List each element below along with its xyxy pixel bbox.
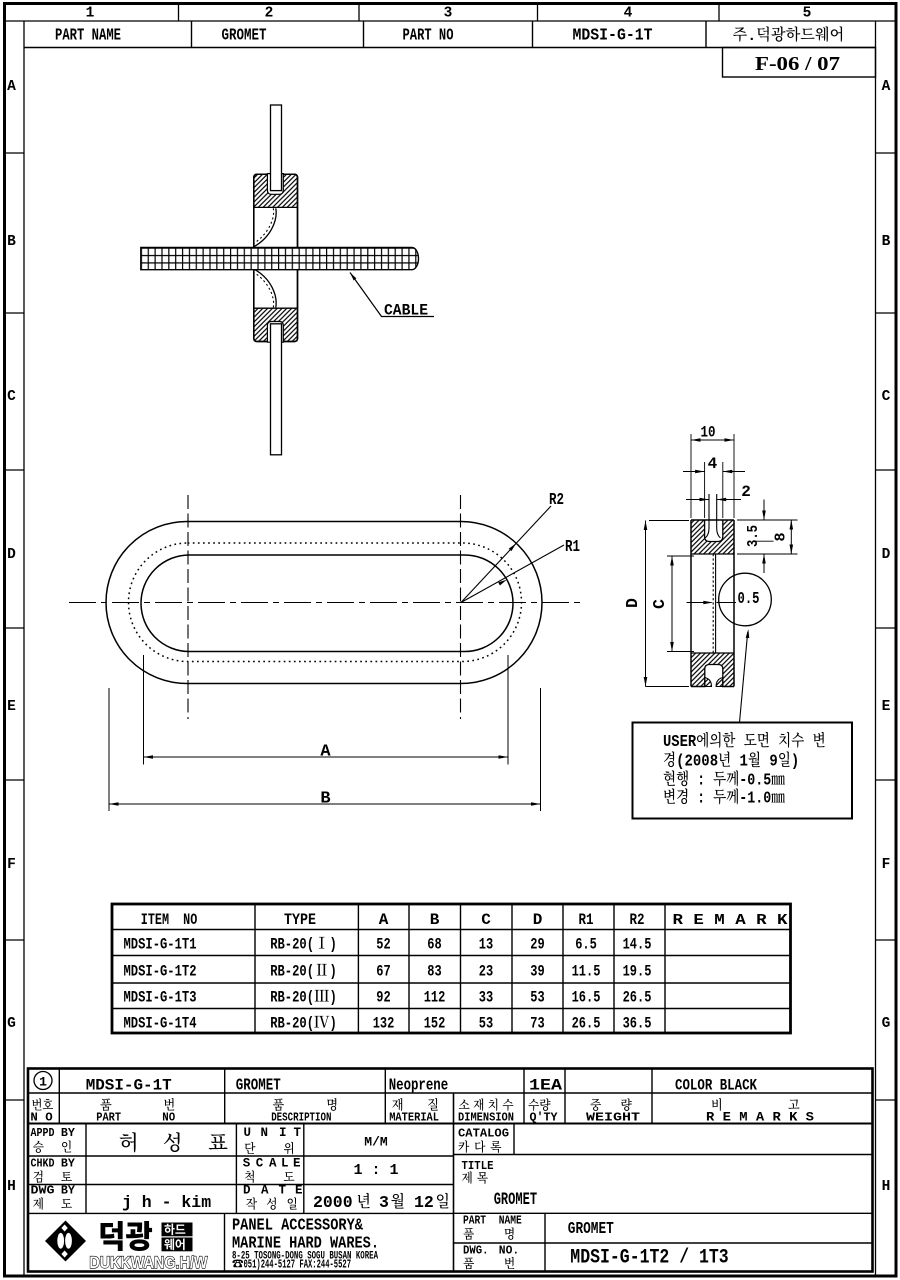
- svg-text:10: 10: [701, 424, 716, 442]
- svg-text:152: 152: [424, 1015, 446, 1033]
- svg-text:26.5: 26.5: [623, 989, 652, 1007]
- svg-text:3.5: 3.5: [745, 525, 762, 547]
- svg-text:92: 92: [376, 989, 390, 1007]
- svg-text:MDSI-G-1T: MDSI-G-1T: [573, 27, 653, 46]
- svg-text:132: 132: [373, 1015, 395, 1033]
- svg-text:33: 33: [479, 989, 493, 1007]
- svg-text:): ): [330, 989, 337, 1007]
- svg-text:16.5: 16.5: [572, 989, 601, 1007]
- svg-text:Neoprene: Neoprene: [389, 1077, 449, 1096]
- svg-text:U: U: [244, 1126, 252, 1140]
- svg-text:F: F: [882, 857, 891, 873]
- svg-text:A: A: [7, 79, 16, 95]
- svg-text::: :: [689, 772, 713, 791]
- svg-text:39: 39: [530, 963, 544, 981]
- svg-text:N: N: [261, 1126, 269, 1140]
- svg-text:53: 53: [530, 989, 544, 1007]
- svg-text:S: S: [243, 1157, 251, 1171]
- svg-text:j h - kim: j h - kim: [122, 1193, 211, 1212]
- svg-text:RB-20(: RB-20(: [270, 963, 314, 981]
- svg-text:53: 53: [479, 1015, 493, 1033]
- svg-text:12: 12: [414, 1193, 434, 1212]
- svg-text:NO.: NO.: [499, 1245, 519, 1258]
- svg-text:-1.0: -1.0: [739, 790, 771, 809]
- svg-text:DESCRIPTION: DESCRIPTION: [271, 1111, 331, 1125]
- svg-text:R1: R1: [565, 538, 580, 557]
- svg-text:Q'TY: Q'TY: [530, 1111, 559, 1125]
- svg-text:4: 4: [708, 455, 718, 473]
- svg-text:.: .: [747, 28, 756, 45]
- svg-text:R E M A R K S: R E M A R K S: [706, 1111, 815, 1125]
- svg-text:23: 23: [479, 963, 493, 981]
- svg-text:): ): [330, 936, 337, 954]
- svg-text:B: B: [430, 911, 440, 929]
- svg-text:3: 3: [379, 1193, 389, 1212]
- svg-text:4: 4: [624, 6, 633, 22]
- svg-text:R2: R2: [630, 911, 645, 929]
- svg-text:DWG.: DWG.: [463, 1245, 489, 1258]
- svg-text:1: 1: [39, 1075, 47, 1090]
- svg-text:73: 73: [530, 1015, 544, 1033]
- svg-text:GROMET: GROMET: [494, 1190, 537, 1210]
- svg-text:B: B: [7, 234, 16, 250]
- svg-text:83: 83: [427, 963, 441, 981]
- svg-text:C: C: [882, 389, 891, 405]
- svg-text:D: D: [7, 547, 16, 563]
- svg-text:1EA: 1EA: [529, 1077, 562, 1095]
- svg-text:DUKKWANG.H/W: DUKKWANG.H/W: [89, 1253, 208, 1272]
- svg-text:8: 8: [773, 532, 790, 541]
- svg-text:GROMET: GROMET: [568, 1220, 614, 1239]
- svg-text:APPD: APPD: [31, 1126, 55, 1140]
- svg-text:GROMET: GROMET: [222, 27, 267, 46]
- svg-text:6.5: 6.5: [575, 936, 597, 954]
- svg-text:E: E: [293, 1157, 301, 1171]
- svg-text:C: C: [7, 389, 16, 405]
- svg-text:PART: PART: [463, 1215, 486, 1228]
- svg-text:TYPE: TYPE: [284, 911, 316, 929]
- svg-text:BY: BY: [61, 1184, 76, 1198]
- svg-text:0.5: 0.5: [738, 590, 760, 609]
- svg-text:BY: BY: [61, 1157, 76, 1171]
- svg-text:RB-20(: RB-20(: [270, 1015, 314, 1033]
- svg-text:112: 112: [424, 989, 446, 1007]
- svg-text:N O: N O: [30, 1111, 52, 1125]
- svg-text:B: B: [320, 790, 330, 809]
- svg-text:T: T: [294, 1126, 302, 1140]
- svg-text:R1: R1: [579, 911, 594, 929]
- svg-text:RB-20(: RB-20(: [270, 936, 314, 954]
- svg-text:NO: NO: [162, 1111, 175, 1125]
- svg-text:D: D: [243, 1184, 251, 1198]
- svg-text:): ): [791, 753, 799, 772]
- svg-text:WEIGHT: WEIGHT: [586, 1111, 640, 1125]
- svg-text:MATERIAL: MATERIAL: [389, 1111, 439, 1125]
- svg-text:G: G: [7, 1016, 16, 1032]
- svg-text:C: C: [481, 911, 491, 929]
- svg-text:BY: BY: [61, 1126, 76, 1140]
- svg-text:D: D: [882, 547, 891, 563]
- svg-text:I: I: [279, 1126, 287, 1140]
- svg-text:DWG: DWG: [31, 1184, 55, 1198]
- svg-text:B: B: [882, 234, 891, 250]
- svg-text:68: 68: [427, 936, 441, 954]
- svg-text:A: A: [379, 911, 389, 929]
- svg-text:5: 5: [803, 6, 812, 22]
- svg-text:CHKD: CHKD: [31, 1157, 55, 1171]
- svg-text:MDSI-G-1T: MDSI-G-1T: [86, 1077, 172, 1095]
- svg-text:2000: 2000: [313, 1193, 353, 1212]
- svg-text:CABLE: CABLE: [384, 302, 428, 320]
- svg-text:G: G: [882, 1016, 891, 1032]
- svg-text:): ): [330, 1015, 337, 1033]
- svg-text:26.5: 26.5: [572, 1015, 601, 1033]
- svg-text:T: T: [279, 1184, 287, 1198]
- svg-text:TITLE: TITLE: [462, 1159, 494, 1173]
- svg-text:36.5: 36.5: [623, 1015, 652, 1033]
- svg-text:MDSI-G-1T3: MDSI-G-1T3: [124, 989, 197, 1007]
- svg-text:H: H: [882, 1179, 891, 1195]
- svg-text:L: L: [281, 1157, 289, 1171]
- svg-text:F-06 / 07: F-06 / 07: [755, 53, 840, 75]
- svg-text:13: 13: [479, 936, 493, 954]
- svg-text:DIMENSION: DIMENSION: [458, 1111, 514, 1125]
- svg-text:3: 3: [444, 6, 453, 22]
- svg-text:H: H: [7, 1179, 16, 1195]
- svg-text:14.5: 14.5: [623, 936, 652, 954]
- svg-text::: :: [689, 790, 713, 809]
- svg-text:D: D: [533, 911, 543, 929]
- svg-text:): ): [330, 963, 337, 981]
- svg-text:E: E: [7, 699, 16, 715]
- svg-text:C: C: [256, 1157, 264, 1171]
- svg-text:2: 2: [265, 6, 274, 22]
- svg-text:-0.5: -0.5: [739, 772, 771, 791]
- svg-text:29: 29: [530, 936, 544, 954]
- svg-text:MDSI-G-1T4: MDSI-G-1T4: [124, 1015, 197, 1033]
- svg-text:D: D: [623, 598, 642, 608]
- svg-text:1: 1: [86, 6, 95, 22]
- svg-text:E: E: [882, 699, 891, 715]
- svg-text:PART NO: PART NO: [403, 27, 454, 46]
- svg-text:19.5: 19.5: [623, 963, 652, 981]
- svg-text:A: A: [261, 1184, 269, 1198]
- svg-text:52: 52: [376, 936, 390, 954]
- svg-text:PART NAME: PART NAME: [55, 27, 121, 46]
- svg-text:MDSI-G-1T2 / 1T3: MDSI-G-1T2 / 1T3: [570, 1247, 728, 1270]
- svg-text:2: 2: [741, 483, 751, 501]
- svg-text:MDSI-G-1T2: MDSI-G-1T2: [124, 963, 197, 981]
- svg-text:1 : 1: 1 : 1: [353, 1162, 398, 1179]
- svg-text:67: 67: [376, 963, 390, 981]
- svg-text:R E M A R K: R E M A R K: [673, 912, 788, 929]
- svg-text:9: 9: [761, 753, 778, 772]
- svg-text:GROMET: GROMET: [236, 1077, 281, 1096]
- svg-text:COLOR BLACK: COLOR BLACK: [675, 1077, 757, 1095]
- svg-text:1: 1: [731, 753, 748, 772]
- svg-text:A: A: [882, 79, 891, 95]
- svg-text:ITEM NO: ITEM NO: [141, 911, 198, 929]
- svg-text:USER: USER: [663, 733, 697, 752]
- svg-text:051)244-5127 FAX:244-5527: 051)244-5127 FAX:244-5527: [244, 1259, 352, 1272]
- svg-text:(2008: (2008: [676, 753, 718, 772]
- svg-text:PART: PART: [96, 1111, 121, 1125]
- svg-text:CATALOG: CATALOG: [458, 1128, 509, 1141]
- svg-text:A: A: [320, 743, 331, 762]
- svg-text:NAME: NAME: [499, 1215, 522, 1228]
- svg-text:C: C: [650, 599, 669, 609]
- svg-text:PANEL ACCESSORY&: PANEL ACCESSORY&: [232, 1217, 364, 1236]
- svg-text:RB-20(: RB-20(: [270, 989, 314, 1007]
- svg-text:MDSI-G-1T1: MDSI-G-1T1: [124, 936, 197, 954]
- svg-text:R2: R2: [549, 491, 564, 510]
- svg-text:E: E: [295, 1184, 303, 1198]
- svg-text:M/M: M/M: [364, 1135, 388, 1150]
- svg-text:F: F: [7, 857, 16, 873]
- svg-text:A: A: [269, 1157, 277, 1171]
- svg-text:11.5: 11.5: [572, 963, 601, 981]
